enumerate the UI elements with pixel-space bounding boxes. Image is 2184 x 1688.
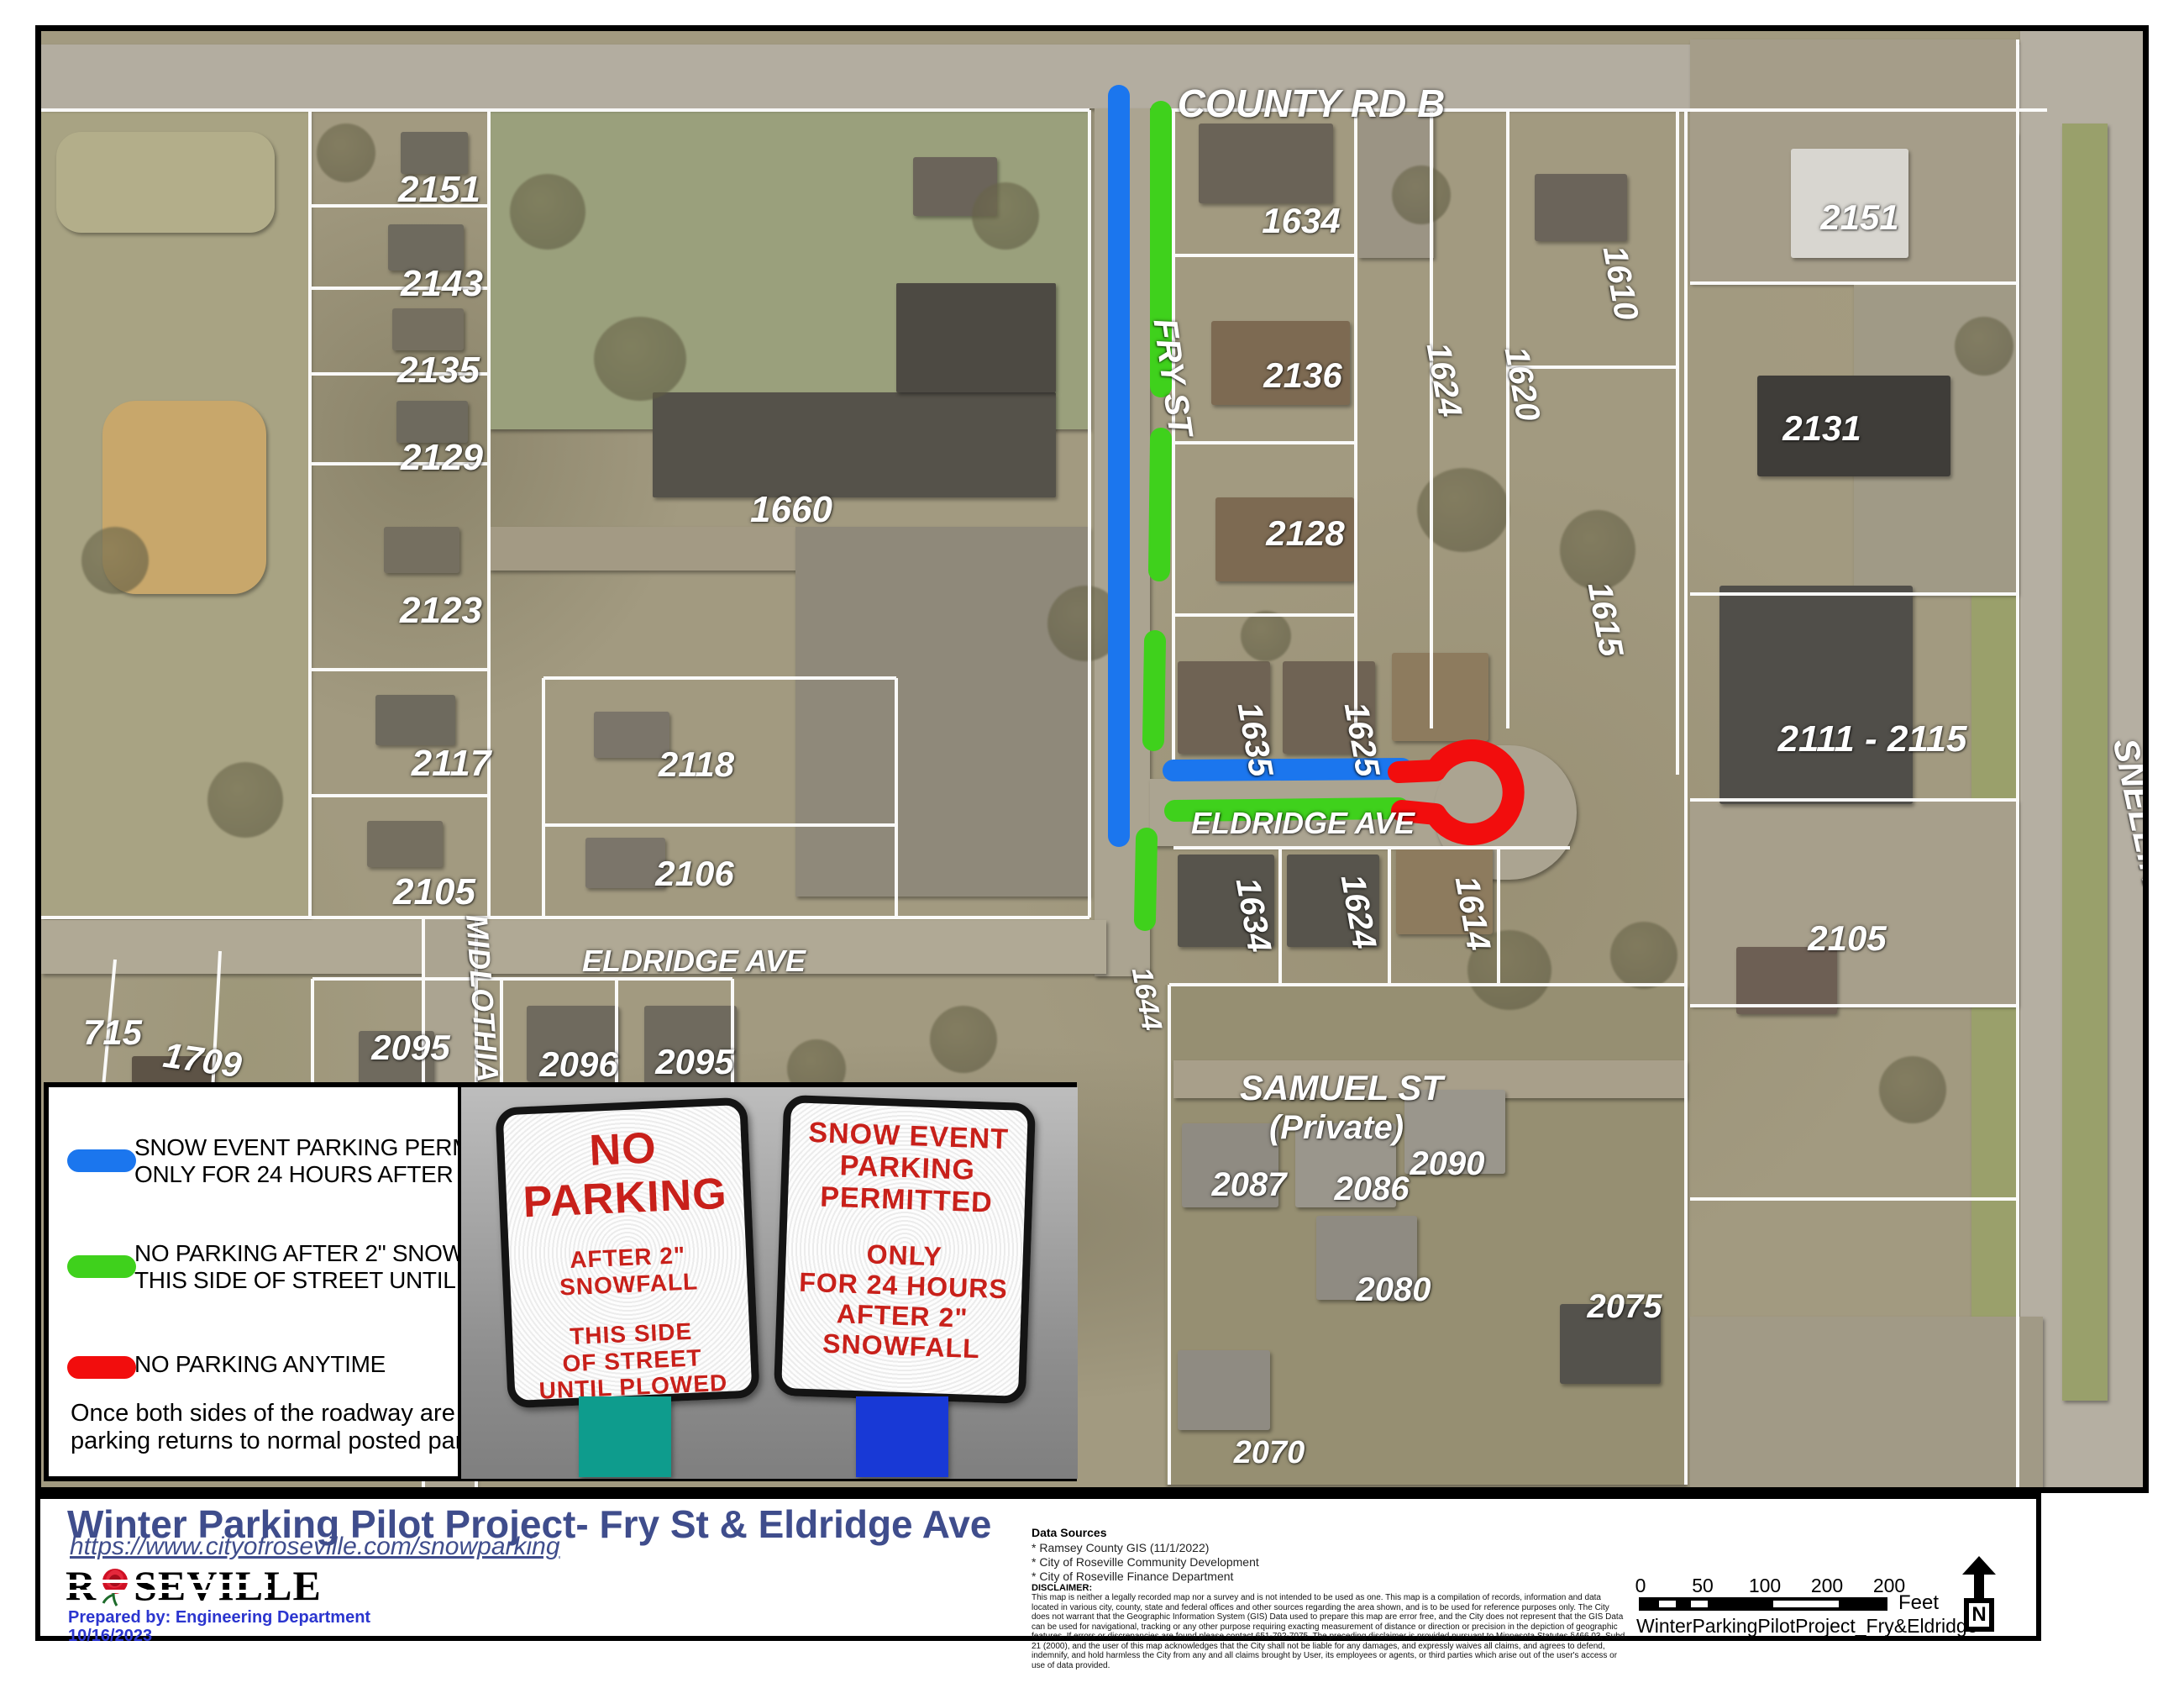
map-label-2096: 2096 bbox=[539, 1047, 617, 1082]
logo-letters: SEVILLE bbox=[134, 1562, 322, 1609]
tree-canopy bbox=[1241, 611, 1291, 661]
scale-tick: 200 bbox=[1811, 1575, 1843, 1597]
logo-slit bbox=[66, 1580, 271, 1583]
disclaimer-title: DISCLAIMER: bbox=[1032, 1583, 1092, 1593]
scale-tick: 100 bbox=[1749, 1575, 1781, 1597]
aerial-structure bbox=[1535, 174, 1627, 241]
tree-canopy bbox=[1047, 586, 1123, 661]
map-label--private-: (Private) bbox=[1269, 1111, 1404, 1144]
tree-canopy bbox=[510, 174, 585, 250]
aerial-structure bbox=[1199, 124, 1333, 203]
legend-swatch-green bbox=[67, 1255, 136, 1278]
map-label-1620: 1620 bbox=[1499, 344, 1546, 424]
aerial-structure bbox=[56, 132, 275, 233]
tree-canopy bbox=[1879, 1056, 1946, 1123]
aerial-structure bbox=[392, 308, 464, 350]
aerial-structure bbox=[1690, 1317, 2043, 1493]
aerial-structure bbox=[1719, 586, 1913, 804]
logo-slit bbox=[66, 1590, 271, 1593]
map-label-715: 715 bbox=[83, 1015, 142, 1050]
scale-unit: Feet bbox=[1898, 1591, 1939, 1615]
map-label-fry-st: FRY ST bbox=[1147, 317, 1197, 439]
data-sources-title: Data Sources bbox=[1032, 1526, 1106, 1539]
aerial-structure bbox=[653, 392, 1056, 497]
north-arrow: N bbox=[1962, 1556, 1996, 1637]
map-date: 10/16/2023 bbox=[68, 1627, 152, 1646]
map-label-1660: 1660 bbox=[750, 492, 832, 528]
parking-signs-photo: NO PARKING AFTER 2" SNOWFALL THIS SIDE O… bbox=[458, 1087, 1078, 1479]
map-label-2090: 2090 bbox=[1410, 1147, 1485, 1181]
map-label-2106: 2106 bbox=[655, 856, 733, 891]
map-label-2086: 2086 bbox=[1335, 1172, 1410, 1206]
tree-canopy bbox=[1417, 468, 1509, 552]
data-source: * Ramsey County GIS (11/1/2022) bbox=[1032, 1541, 1209, 1554]
tree-canopy bbox=[317, 124, 375, 182]
map-label-2118: 2118 bbox=[659, 747, 734, 782]
tree-canopy bbox=[1560, 510, 1635, 590]
legend-label: NO PARKING ANYTIME bbox=[134, 1351, 386, 1378]
map-label-2151: 2151 bbox=[1820, 200, 1898, 235]
aerial-structure bbox=[795, 527, 1089, 897]
map-label-1615: 1615 bbox=[1583, 580, 1629, 660]
overlay-green-fry-2 bbox=[1159, 439, 1161, 571]
tree-canopy bbox=[207, 762, 283, 838]
legend-swatch-blue bbox=[67, 1149, 136, 1172]
map-label-2111-2115: 2111 - 2115 bbox=[1777, 721, 1966, 758]
map-label-eldridge-ave: ELDRIDGE AVE bbox=[582, 946, 806, 976]
no-parking-sign: NO PARKING AFTER 2" SNOWFALL THIS SIDE O… bbox=[495, 1097, 759, 1409]
map-label-1634: 1634 bbox=[1262, 203, 1340, 239]
map-sheet: COUNTY RD BFRY STELDRIDGE AVEELDRIDGE AV… bbox=[0, 0, 2184, 1688]
map-label-samuel-st: SAMUEL ST bbox=[1240, 1070, 1443, 1106]
map-label-1624: 1624 bbox=[1421, 340, 1467, 420]
scale-bar-segment bbox=[1773, 1601, 1839, 1607]
map-filename: WinterParkingPilotProject_Fry&Eldridge bbox=[1636, 1615, 1978, 1638]
map-label-2123: 2123 bbox=[400, 592, 482, 629]
aerial-structure bbox=[1178, 1350, 1270, 1430]
aerial-structure bbox=[401, 132, 468, 174]
aerial-structure bbox=[2062, 124, 2108, 1401]
map-label-2129: 2129 bbox=[401, 439, 483, 476]
teal-reflector-tab bbox=[579, 1396, 671, 1477]
aerial-structure bbox=[1392, 653, 1488, 741]
map-label-county-rd-b: COUNTY RD B bbox=[1178, 84, 1446, 123]
map-label-2151: 2151 bbox=[398, 171, 480, 208]
tree-canopy bbox=[594, 317, 686, 401]
map-label-2143: 2143 bbox=[401, 266, 483, 302]
map-label-2070: 2070 bbox=[1234, 1437, 1305, 1469]
disclaimer-text: This map is neither a legally recorded m… bbox=[1032, 1593, 1630, 1670]
map-label-2131: 2131 bbox=[1782, 411, 1861, 446]
map-label-eldridge-ave: ELDRIDGE AVE bbox=[1191, 808, 1415, 839]
overlay-green-fry-3 bbox=[1153, 641, 1155, 740]
aerial-structure bbox=[585, 838, 665, 888]
map-label-2080: 2080 bbox=[1357, 1273, 1431, 1307]
north-arrow-head bbox=[1962, 1556, 1996, 1575]
blue-reflector-tab bbox=[856, 1396, 948, 1477]
tree-canopy bbox=[1392, 166, 1451, 224]
tree-canopy bbox=[972, 182, 1039, 250]
map-footer: Winter Parking Pilot Project- Fry St & E… bbox=[35, 1493, 2041, 1641]
scale-bar bbox=[1639, 1597, 1887, 1611]
map-label-2095: 2095 bbox=[655, 1044, 733, 1080]
scale-bar-segment bbox=[1691, 1601, 1708, 1607]
map-label-2128: 2128 bbox=[1266, 516, 1344, 551]
map-label-2075: 2075 bbox=[1588, 1290, 1662, 1323]
map-label-2095: 2095 bbox=[371, 1030, 449, 1065]
scale-tick: 50 bbox=[1692, 1575, 1714, 1597]
north-label: N bbox=[1964, 1598, 1994, 1632]
prepared-by: Prepared by: Engineering Department bbox=[68, 1608, 370, 1628]
tree-canopy bbox=[1955, 317, 2013, 376]
aerial-structure bbox=[367, 821, 443, 867]
tree-canopy bbox=[930, 1006, 997, 1073]
map-label-1610: 1610 bbox=[1598, 244, 1644, 323]
rose-icon bbox=[97, 1564, 134, 1606]
north-arrow-stem bbox=[1974, 1575, 1984, 1598]
map-label-2105: 2105 bbox=[1808, 921, 1886, 956]
scale-tick: 0 bbox=[1635, 1575, 1646, 1597]
tree-canopy bbox=[81, 527, 149, 594]
scale-bar-segment bbox=[1659, 1601, 1676, 1607]
roseville-logo: RSEVILLE bbox=[66, 1561, 322, 1605]
tree-canopy bbox=[1610, 922, 1677, 989]
project-url-link[interactable]: https://www.cityofroseville.com/snowpark… bbox=[70, 1533, 560, 1561]
map-label-1635: 1635 bbox=[1232, 700, 1278, 780]
aerial-structure bbox=[41, 920, 1106, 974]
map-label-2117: 2117 bbox=[412, 745, 491, 782]
logo-letter: R bbox=[66, 1562, 97, 1609]
aerial-structure bbox=[384, 527, 459, 573]
snow-event-parking-sign: SNOW EVENT PARKING PERMITTED ONLY FOR 24… bbox=[774, 1095, 1036, 1404]
map-label-1644: 1644 bbox=[1127, 965, 1167, 1033]
aerial-structure bbox=[896, 283, 1056, 392]
map-label-2087: 2087 bbox=[1212, 1168, 1287, 1202]
map-label-2135: 2135 bbox=[397, 352, 480, 389]
legend-swatch-red bbox=[67, 1356, 136, 1379]
map-label-1625: 1625 bbox=[1339, 700, 1385, 780]
map-label-2105: 2105 bbox=[393, 874, 475, 911]
aerial-structure bbox=[375, 695, 455, 745]
aerial-structure bbox=[1095, 108, 1150, 976]
data-source: * City of Roseville Community Developmen… bbox=[1032, 1555, 1259, 1569]
aerial-structure bbox=[489, 527, 800, 571]
map-label-2136: 2136 bbox=[1263, 358, 1341, 393]
sign-text: PARKING bbox=[506, 1169, 744, 1228]
data-source: * City of Roseville Finance Department bbox=[1032, 1570, 1233, 1583]
